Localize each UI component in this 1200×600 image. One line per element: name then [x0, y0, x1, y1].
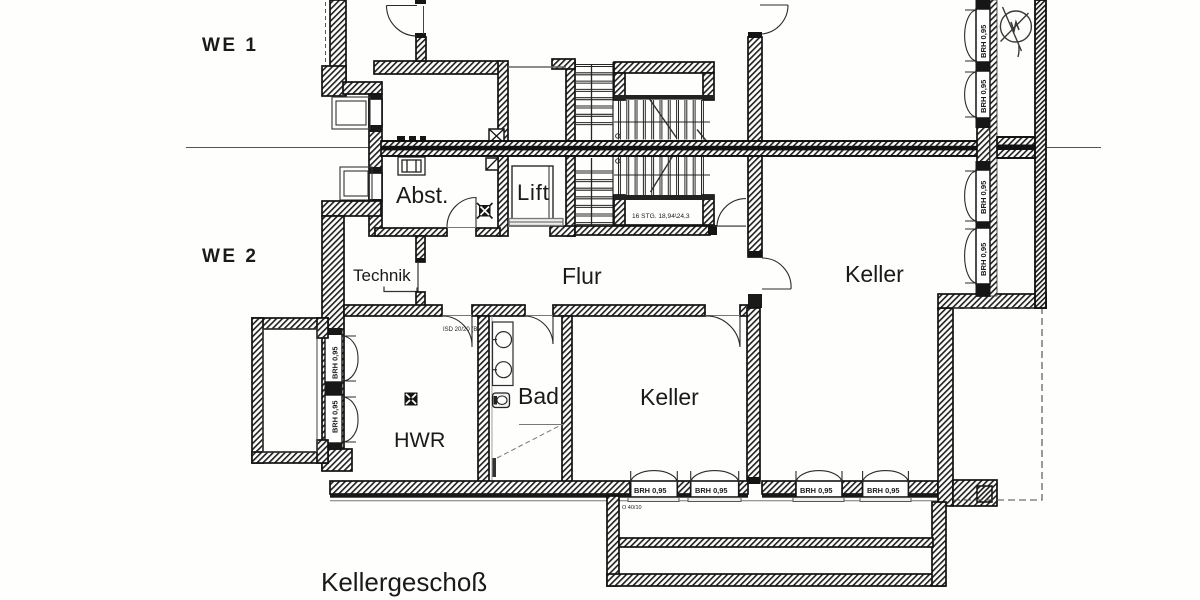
- svg-text:BRH 0,95: BRH 0,95: [979, 180, 988, 214]
- svg-text:O 40/10: O 40/10: [622, 505, 642, 511]
- svg-text:BRH 0,95: BRH 0,95: [800, 486, 832, 495]
- svg-text:BRH 0,95: BRH 0,95: [331, 347, 340, 379]
- svg-text:BRH 0,95: BRH 0,95: [634, 486, 666, 495]
- svg-text:Technik: Technik: [353, 266, 411, 285]
- svg-text:Bad: Bad: [518, 383, 559, 409]
- svg-text:Lift: Lift: [517, 180, 550, 205]
- svg-text:BRH 0,95: BRH 0,95: [695, 486, 727, 495]
- svg-text:Kellergeschoß: Kellergeschoß: [321, 567, 487, 597]
- svg-text:BRH 0,95: BRH 0,95: [979, 242, 988, 276]
- svg-text:WE 2: WE 2: [202, 246, 258, 267]
- svg-text:BRH 0,95: BRH 0,95: [867, 486, 899, 495]
- svg-text:HWR: HWR: [394, 428, 445, 452]
- svg-text:Flur: Flur: [562, 263, 602, 289]
- svg-text:BRH 0,95: BRH 0,95: [979, 79, 988, 113]
- svg-text:BRH 0,95: BRH 0,95: [331, 401, 340, 433]
- svg-text:BRH 0,95: BRH 0,95: [979, 24, 988, 58]
- svg-text:ISD 20/20 (B): ISD 20/20 (B): [443, 327, 479, 333]
- svg-text:16 STG. 18,94\24,3: 16 STG. 18,94\24,3: [632, 213, 690, 220]
- svg-text:Keller: Keller: [845, 261, 904, 287]
- svg-text:Keller: Keller: [640, 384, 699, 410]
- svg-text:WE 1: WE 1: [202, 35, 258, 56]
- svg-text:Abst.: Abst.: [396, 182, 448, 208]
